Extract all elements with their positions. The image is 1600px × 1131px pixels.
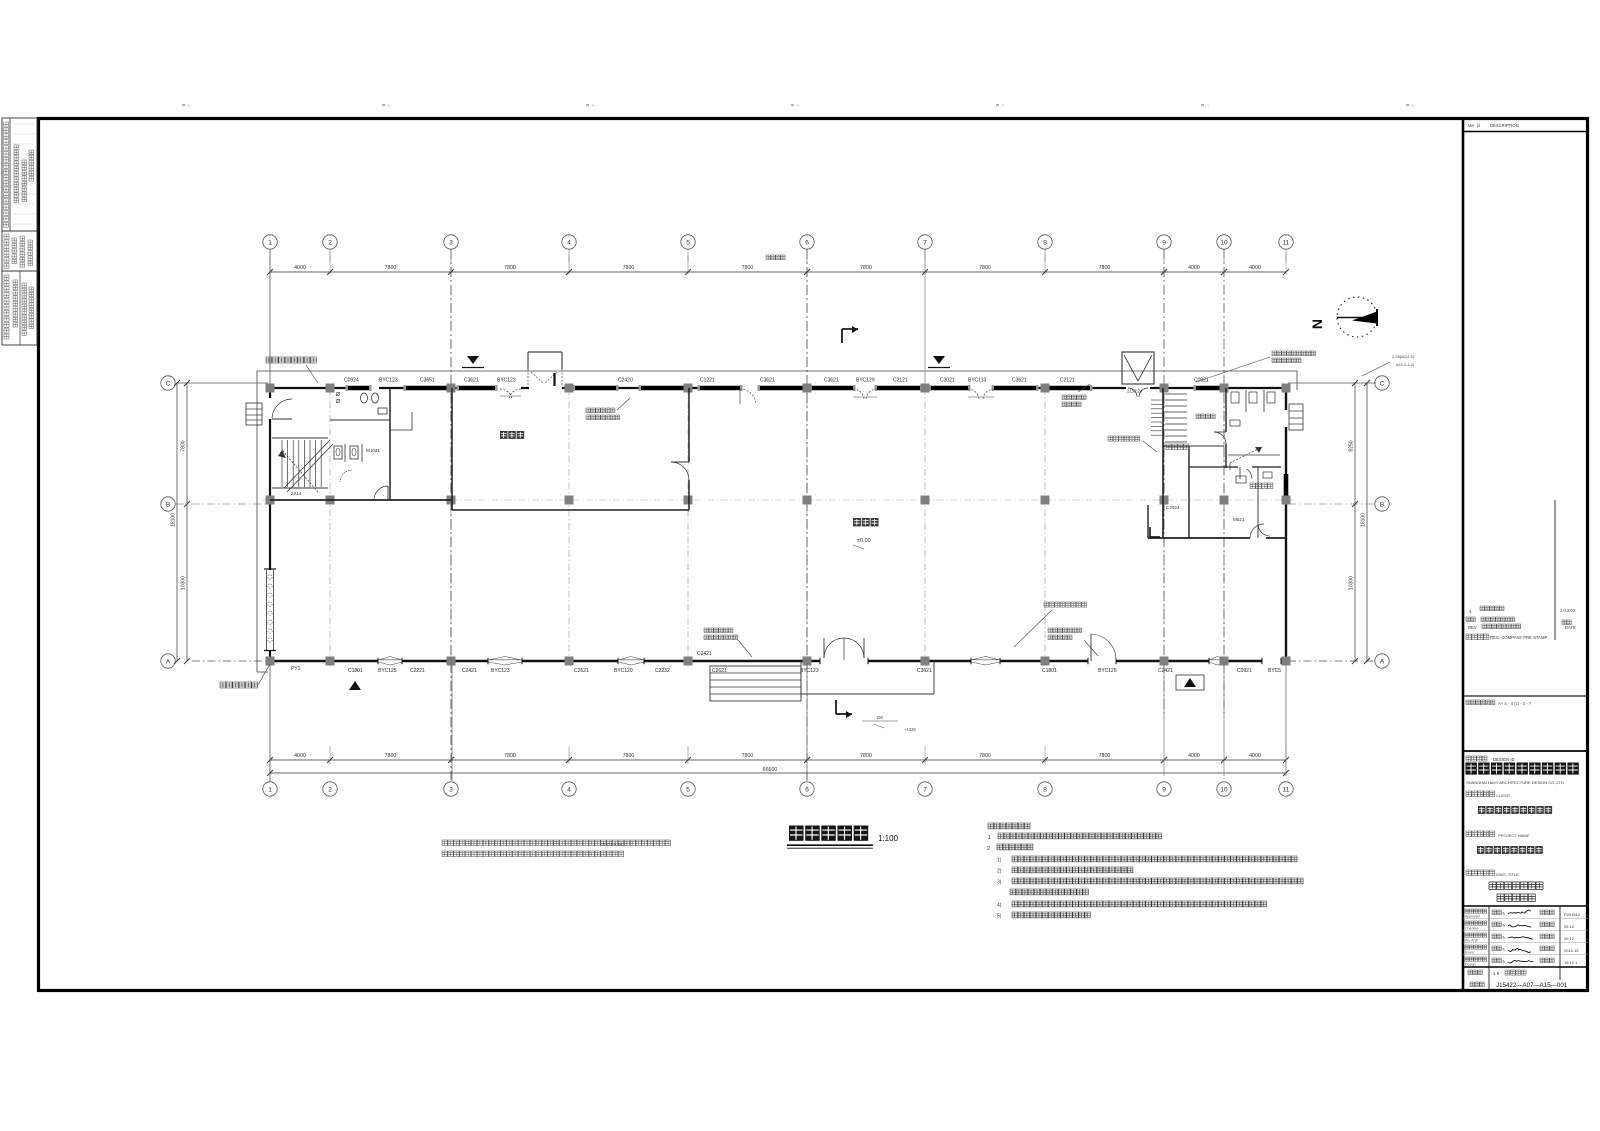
svg-text:2.0.2.02: 2.0.2.02 [1560,608,1576,613]
svg-text:DESCRIPTION: DESCRIPTION [1490,123,1519,128]
svg-text:15 12 1: 15 12 1 [1564,960,1578,965]
svg-text:C2420: C2420 [618,378,633,384]
svg-text:✎: ✎ [1502,923,1505,928]
svg-text:25 12: 25 12 [1564,936,1575,941]
svg-text:9: 9 [1162,787,1166,794]
svg-text:2X14: 2X14 [291,491,302,496]
svg-text:3: 3 [449,240,453,247]
svg-text:1:100: 1:100 [878,834,899,843]
svg-text:J15422—A07—A15—001: J15422—A07—A15—001 [1496,982,1568,989]
svg-text:Checked: Checked [1465,927,1478,931]
svg-text:5: 5 [686,787,690,794]
svg-text:C2421: C2421 [697,651,712,657]
svg-text:✎: ✎ [1502,935,1505,940]
svg-text:|s: |s [1477,123,1480,128]
svg-text:BYC123: BYC123 [491,668,510,674]
svg-text:7800: 7800 [1099,753,1111,759]
svg-text:8: 8 [1043,787,1047,794]
svg-text:7800: 7800 [860,753,872,759]
svg-text:MA: MA [1468,123,1474,128]
svg-text:BYC129: BYC129 [856,378,875,384]
svg-text:BYC120: BYC120 [614,668,633,674]
svg-text:✎: ✎ [1502,959,1505,964]
svg-text:7: 7 [923,240,927,247]
svg-text:7800: 7800 [860,265,872,271]
svg-text:M1021: M1021 [366,448,380,453]
svg-text:Pro.Arch: Pro.Arch [1465,939,1478,943]
svg-text:BYC125: BYC125 [1098,668,1117,674]
svg-text:8250: 8250 [1349,440,1355,451]
svg-text:2: 2 [328,787,332,794]
svg-text:C3621: C3621 [917,668,932,674]
svg-text:C2121: C2121 [1060,378,1075,384]
svg-text:4000: 4000 [294,265,306,271]
svg-text:10: 10 [1220,787,1228,794]
svg-text:P201512: P201512 [1564,912,1581,917]
svg-text:7800: 7800 [385,753,397,759]
svg-text:C3651: C3651 [420,378,435,384]
svg-text:3: 3 [449,787,453,794]
svg-text:2): 2) [997,869,1002,875]
svg-text:BYC123: BYC123 [497,378,516,384]
svg-text:M521: M521 [1233,517,1245,522]
svg-text:BYC5: BYC5 [1268,668,1281,674]
svg-text:C3621: C3621 [760,378,775,384]
svg-text:A: A [1380,659,1385,666]
svg-text:4): 4) [997,903,1002,909]
svg-text:4000: 4000 [1188,265,1200,271]
svg-text:9: 9 [1162,240,1166,247]
svg-text:Exam: Exam [1465,951,1474,955]
svg-text:7800: 7800 [385,265,397,271]
svg-text:DESIGN-ID: DESIGN-ID [1493,757,1515,762]
svg-text:1 5: 1 5 [1493,971,1500,976]
svg-text:4000: 4000 [294,753,306,759]
svg-text:4: 4 [567,787,571,794]
svg-text:C2232: C2232 [655,668,670,674]
svg-text:B: B [166,502,170,509]
svg-text:4000: 4000 [1249,753,1261,759]
svg-text:C2421: C2421 [1158,668,1173,674]
svg-text:C1801: C1801 [1042,668,1057,674]
svg-text:Design: Design [1465,963,1476,967]
svg-text:C3021: C3021 [940,378,955,384]
svg-text:✎: ✎ [1502,947,1505,952]
svg-text:C: C [1380,381,1385,388]
svg-text:B: B [1380,502,1384,509]
svg-text:REV.: REV. [1468,625,1477,630]
svg-text:11: 11 [1283,787,1290,794]
svg-text:PY1: PY1 [291,666,301,672]
svg-text:5): 5) [997,914,1002,920]
svg-text:3): 3) [997,880,1002,886]
svg-text:11: 11 [1283,240,1290,247]
svg-text:4000: 4000 [1249,265,1261,271]
svg-text:C3621: C3621 [824,378,839,384]
svg-text:DATE: DATE [1565,625,1576,630]
svg-text:A: A [166,659,171,666]
svg-text:C2621: C2621 [574,668,589,674]
svg-text:5: 5 [686,240,690,247]
svg-text:66600: 66600 [763,767,778,773]
svg-text:C2221: C2221 [410,668,425,674]
svg-text:C0921: C0921 [1237,668,1252,674]
svg-text:7800: 7800 [742,753,754,759]
svg-text:150: 150 [876,715,884,720]
svg-text:4: 4 [567,240,571,247]
svg-text:REG. COMPANY PRE STAMP: REG. COMPANY PRE STAMP [1490,635,1547,640]
svg-text:+1428: +1428 [904,727,916,732]
svg-text:7800: 7800 [504,265,516,271]
svg-text:DWG. TITLE: DWG. TITLE [1496,872,1519,877]
svg-text:8: 8 [1043,240,1047,247]
svg-text:Approved: Approved [1465,915,1480,919]
svg-text:PROJECT NAME: PROJECT NAME [1498,833,1530,838]
svg-text:A+ 4 - 4 (1) - 4 - 7: A+ 4 - 4 (1) - 4 - 7 [1498,701,1532,706]
svg-text:BYC123: BYC123 [800,668,819,674]
svg-text:7800: 7800 [623,753,635,759]
svg-text:18100: 18100 [1361,513,1367,527]
svg-text:2015.12: 2015.12 [1564,948,1579,953]
svg-text:7800: 7800 [979,265,991,271]
svg-text:4000: 4000 [1188,753,1200,759]
svg-text:CLIENT: CLIENT [1496,793,1511,798]
svg-text:BYC125: BYC125 [378,668,397,674]
svg-text:1: 1 [268,787,272,794]
svg-text:C3621: C3621 [1012,378,1027,384]
svg-text:C: C [166,381,171,388]
svg-text:C2121: C2121 [893,378,908,384]
svg-text:7800: 7800 [181,440,187,451]
svg-text:#24.2-4.2): #24.2-4.2) [1396,362,1415,367]
svg-text:10300: 10300 [1349,576,1355,590]
svg-text:C2024: C2024 [1166,505,1180,510]
svg-text:✎: ✎ [1502,911,1505,916]
svg-text:7800: 7800 [1099,265,1111,271]
svg-text:25 12: 25 12 [1564,924,1575,929]
svg-text:7800: 7800 [504,753,516,759]
svg-text:10: 10 [1220,240,1228,247]
svg-text:BYC123: BYC123 [379,378,398,384]
svg-text:1: 1 [268,240,272,247]
svg-text:C3621: C3621 [464,378,479,384]
svg-text:C0924: C0924 [344,378,359,384]
svg-text:7: 7 [923,787,927,794]
svg-text:C2421: C2421 [462,668,477,674]
svg-text:7800: 7800 [742,265,754,271]
svg-text:C1801: C1801 [348,668,363,674]
svg-text:1): 1) [997,858,1002,864]
svg-text:2: 2 [328,240,332,247]
svg-text:6: 6 [805,787,809,794]
svg-text:7800: 7800 [623,265,635,271]
svg-text:C1221: C1221 [700,378,715,384]
svg-text:BYC113: BYC113 [968,378,986,384]
svg-text:N: N [1309,319,1325,329]
svg-text:7800: 7800 [979,753,991,759]
svg-text:18100: 18100 [171,513,177,527]
svg-text:<0´C1 0.84>: <0´C1 0.84> [600,842,625,847]
svg-text:2.25(W24.2): 2.25(W24.2) [1392,354,1415,359]
svg-text:SHANGHAI HAIYI ARCHITECTURE DE: SHANGHAI HAIYI ARCHITECTURE DESIGN CO.,L… [1466,780,1564,785]
svg-text:±0.00: ±0.00 [857,538,871,544]
svg-text:6: 6 [805,240,809,247]
svg-text:2: 2 [987,846,990,852]
svg-text:10300: 10300 [181,576,187,590]
svg-text:1: 1 [988,835,991,841]
